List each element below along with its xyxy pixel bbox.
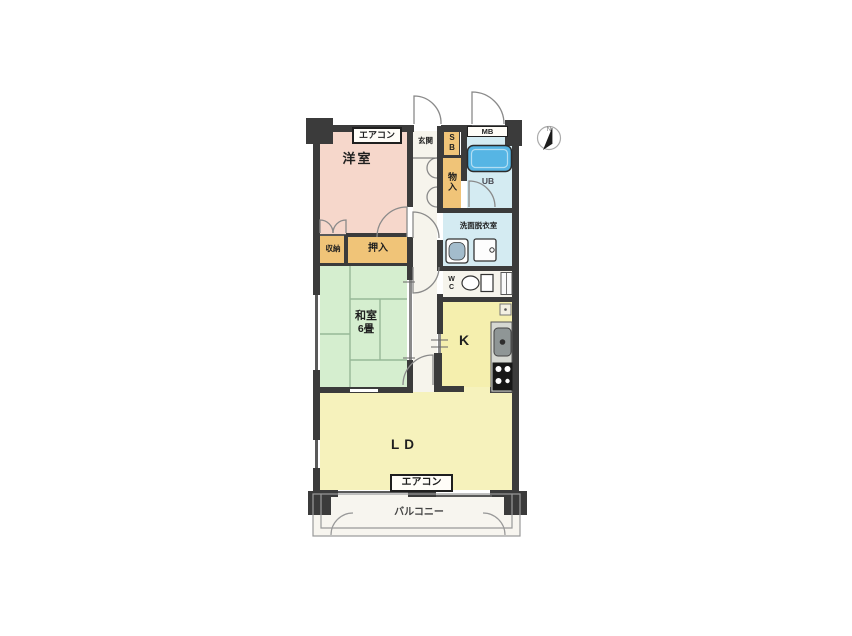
japanese-room-label: 和室 <box>343 309 389 323</box>
balcony-label: バルコニー <box>380 506 458 519</box>
sliding-partition <box>409 280 412 360</box>
washroom-label: 洗面脱衣室 <box>450 220 507 231</box>
aircon-label-ld: エアコン <box>390 474 453 492</box>
sliding-partition <box>438 334 441 353</box>
unit-bath-label: UB <box>477 176 499 187</box>
wc-label: WC <box>446 274 457 294</box>
room-western <box>320 131 407 236</box>
oshiire-label: 押入 <box>358 242 398 255</box>
window <box>315 295 318 370</box>
compass-north-label: N <box>544 126 554 134</box>
shuno-label: 収納 <box>320 244 346 254</box>
meter-box-label: MB <box>467 126 508 137</box>
entrance-label: 玄関 <box>414 136 437 146</box>
meterbox-door-arc <box>472 92 504 124</box>
floor-plan: エアコン エアコン MB 洋室 玄関 SB 物入 UB 洗面脱衣室 WC 収納 … <box>0 0 852 636</box>
storage-monoiri-label: 物入 <box>445 163 458 201</box>
shoe-box-label: SB <box>445 129 458 156</box>
window <box>315 440 318 468</box>
sliding-door-mark <box>350 389 378 392</box>
aircon-label-western: エアコン <box>352 127 402 144</box>
western-room-label: 洋室 <box>330 149 385 167</box>
kitchen-label: K <box>450 331 478 349</box>
living-dining-label: LD <box>383 437 427 453</box>
japanese-room-size: 6畳 <box>343 323 389 336</box>
entrance-door-arc <box>414 96 441 124</box>
